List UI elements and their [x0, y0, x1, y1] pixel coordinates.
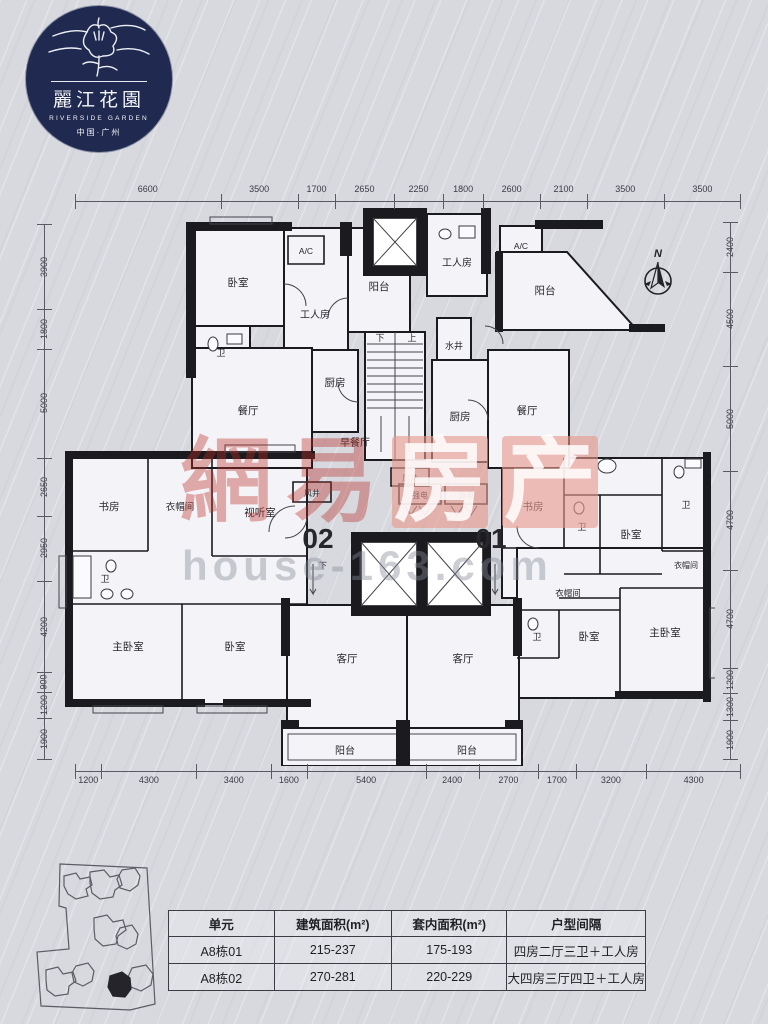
label-bedroom-left2: 卧室: [225, 640, 246, 653]
label-living-right: 客厅: [453, 652, 474, 665]
unit-number-01: 01: [475, 523, 506, 554]
label-kitchen-right: 厨房: [450, 410, 471, 423]
label-balcony-bl: 阳台: [335, 744, 355, 757]
label-bath-tl: 卫: [216, 348, 225, 358]
label-dining-left: 餐厅: [238, 404, 259, 417]
floorplan-page: 麗江花園 RIVERSIDE GARDEN 中国·广州 660035001700…: [0, 0, 768, 1024]
label-worker-left: 工人房: [300, 308, 330, 321]
label-bath-right1: 卫: [577, 522, 586, 532]
room-living-right: [407, 605, 519, 735]
label-study-left: 书房: [99, 500, 120, 513]
dimension-row-top: 6600350017002650225018002600210035003500: [75, 183, 741, 209]
label-strong-electric: 强电: [412, 490, 428, 500]
elevator-core-bottom: [351, 532, 491, 616]
label-master-left: 主卧室: [112, 640, 144, 653]
room-worker-center: [427, 214, 487, 296]
site-building-8: [128, 965, 153, 991]
floor-plan: 卧室 卫 A/C 工人房 阳台 工人房 A/C 阳台 水井 下 上 厨房 餐厅 …: [55, 206, 715, 766]
site-building-7: [72, 963, 94, 986]
logo: 麗江花園 RIVERSIDE GARDEN 中国·广州: [26, 6, 172, 152]
label-bedroom-tl: 卧室: [228, 276, 249, 289]
site-building-6: [46, 967, 76, 996]
col-unit: 单元: [169, 911, 275, 937]
cell-gross: 215-237: [274, 937, 391, 964]
label-av-room: 视听室: [244, 506, 276, 519]
spec-table: 单元 建筑面积(m²) 套内面积(m²) 户型间隔 A8栋01 215-237 …: [168, 910, 646, 991]
col-layout: 户型间隔: [507, 911, 646, 937]
unit-number-02: 02: [302, 523, 333, 554]
dimension-col-right: 24004500500047004700120013001900: [720, 222, 746, 760]
logo-title-cn: 麗江花園: [53, 85, 145, 112]
label-cloak-right1: 衣帽间: [674, 560, 698, 570]
label-stairs-down: 下: [375, 333, 384, 343]
site-building-1: [64, 873, 92, 899]
label-balcony-tr: 阳台: [535, 284, 556, 297]
label-dining-right: 餐厅: [517, 404, 538, 417]
spec-row-a8-02: A8栋02 270-281 220-229 大四房三厅四卫＋工人房: [169, 964, 646, 991]
label-study-right: 书房: [523, 500, 544, 513]
label-air-shaft-1: 风井: [304, 488, 320, 498]
label-balcony-tl: 阳台: [369, 280, 390, 293]
label-bath-left2: 卫: [100, 574, 109, 584]
label-ac-right: A/C: [514, 241, 528, 251]
label-living-left: 客厅: [337, 652, 358, 665]
col-gross-area: 建筑面积(m²): [274, 911, 391, 937]
site-building-4: [94, 915, 126, 946]
dimension-row-bottom: 1200430034001600540024002700170032004300: [75, 766, 741, 792]
label-water-shaft: 水井: [445, 340, 463, 351]
room-living-left: [287, 605, 407, 735]
cell-unit: A8栋01: [169, 937, 275, 964]
label-breakfast: 早餐厅: [340, 436, 370, 449]
cell-unit: A8栋02: [169, 964, 275, 991]
site-building-2: [90, 870, 122, 899]
label-worker-center: 工人房: [442, 256, 472, 269]
right-wing-lower: [517, 548, 710, 698]
label-exit-down-right: 下: [481, 561, 489, 570]
label-cloak-left: 衣帽间: [166, 501, 195, 513]
label-cloak-right2: 衣帽间: [555, 588, 581, 598]
label-stairs-up: 上: [407, 333, 416, 343]
label-kitchen-left: 厨房: [325, 376, 346, 389]
logo-title-en: RIVERSIDE GARDEN: [49, 115, 149, 122]
room-kitchen-left: [312, 350, 358, 432]
label-bedroom-right2: 卧室: [579, 630, 600, 643]
room-balcony-topright: [497, 252, 637, 330]
cell-layout: 四房二厅三卫＋工人房: [507, 937, 646, 964]
logo-flower-icon: [47, 14, 151, 80]
label-weak-electric: 弱电: [458, 490, 474, 500]
site-building-5: [116, 925, 138, 949]
logo-location: 中国·广州: [77, 127, 122, 138]
label-air-shaft-2: 风井: [402, 473, 418, 483]
cell-gross: 270-281: [274, 964, 391, 991]
label-bath-right2: 卫: [681, 500, 690, 510]
spec-header-row: 单元 建筑面积(m²) 套内面积(m²) 户型间隔: [169, 911, 646, 937]
cell-net: 220-229: [391, 964, 507, 991]
label-bath-right3: 卫: [532, 632, 541, 642]
label-ac-left: A/C: [299, 246, 313, 256]
dimension-col-left: 39001800500026502950420090012001900: [34, 224, 60, 760]
label-balcony-br: 阳台: [457, 744, 477, 757]
label-exit-down-left: 下: [319, 561, 327, 570]
cell-layout: 大四房三厅四卫＋工人房: [507, 964, 646, 991]
label-master-right: 主卧室: [649, 626, 681, 639]
shaft-chevrons: [405, 506, 477, 515]
elevator-core-top: [363, 208, 427, 276]
logo-divider: [51, 81, 147, 82]
site-key-map: [28, 856, 168, 1020]
spec-row-a8-01: A8栋01 215-237 175-193 四房二厅三卫＋工人房: [169, 937, 646, 964]
col-net-area: 套内面积(m²): [391, 911, 507, 937]
cell-net: 175-193: [391, 937, 507, 964]
site-building-highlight: [108, 972, 131, 997]
label-bedroom-right1: 卧室: [621, 528, 642, 541]
